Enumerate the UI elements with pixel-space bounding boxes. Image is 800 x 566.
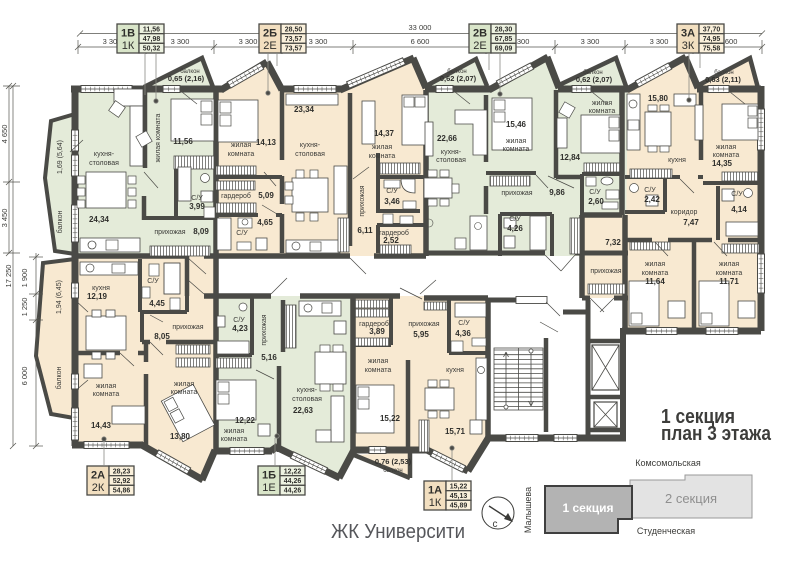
svg-text:2,60: 2,60 xyxy=(588,197,604,206)
svg-text:жилая комната: жилая комната xyxy=(155,114,162,163)
svg-text:8,05: 8,05 xyxy=(154,332,170,341)
svg-text:жилая: жилая xyxy=(174,381,195,388)
svg-text:3,99: 3,99 xyxy=(189,202,205,211)
svg-text:5,16: 5,16 xyxy=(261,353,277,362)
svg-text:С/У: С/У xyxy=(458,320,470,327)
svg-text:1К: 1К xyxy=(122,40,135,52)
svg-text:1 250: 1 250 xyxy=(20,298,29,317)
svg-text:коридор: коридор xyxy=(671,209,698,216)
svg-text:45,89: 45,89 xyxy=(450,503,468,510)
svg-text:С/У: С/У xyxy=(731,191,743,198)
svg-text:3 300: 3 300 xyxy=(650,37,669,46)
svg-text:1,94 (6,45): 1,94 (6,45) xyxy=(56,280,63,314)
svg-text:14,35: 14,35 xyxy=(712,159,733,168)
svg-text:С/У: С/У xyxy=(589,189,601,196)
svg-text:кухня-: кухня- xyxy=(94,151,115,158)
svg-text:3 300: 3 300 xyxy=(171,37,190,46)
svg-text:комната: комната xyxy=(228,151,255,158)
svg-text:С/У: С/У xyxy=(236,230,248,237)
svg-text:11,71: 11,71 xyxy=(719,277,739,286)
svg-text:1,69 (5,64): 1,69 (5,64) xyxy=(57,140,64,174)
svg-text:комната: комната xyxy=(716,270,743,277)
svg-text:3А: 3А xyxy=(681,28,695,40)
svg-text:комната: комната xyxy=(221,436,248,443)
svg-text:12,22: 12,22 xyxy=(235,416,256,425)
svg-text:1Б: 1Б xyxy=(262,470,276,482)
svg-text:74,95: 74,95 xyxy=(703,36,721,43)
svg-text:2Е: 2Е xyxy=(263,40,276,52)
svg-text:Студенческая: Студенческая xyxy=(637,526,695,536)
svg-text:С/У: С/У xyxy=(233,317,245,324)
svg-text:4,23: 4,23 xyxy=(232,324,248,333)
svg-text:11,64: 11,64 xyxy=(645,277,665,286)
svg-text:прихожая: прихожая xyxy=(408,321,439,328)
svg-text:14,37: 14,37 xyxy=(374,129,395,138)
svg-text:кухня-: кухня- xyxy=(297,387,318,394)
svg-text:67,85: 67,85 xyxy=(495,36,513,43)
svg-text:12,22: 12,22 xyxy=(284,469,302,476)
svg-text:6,11: 6,11 xyxy=(357,226,373,235)
svg-text:15,46: 15,46 xyxy=(506,120,527,129)
svg-text:0,62 (2,07): 0,62 (2,07) xyxy=(440,74,477,83)
svg-text:прихожая: прихожая xyxy=(261,314,268,345)
svg-text:11,56: 11,56 xyxy=(173,137,193,146)
svg-text:кухня: кухня xyxy=(668,157,686,164)
svg-text:балкон: балкон xyxy=(55,367,63,390)
svg-text:1 секция: 1 секция xyxy=(562,501,613,515)
svg-text:жилая: жилая xyxy=(506,138,527,145)
svg-text:15,22: 15,22 xyxy=(450,484,468,491)
svg-text:28,23: 28,23 xyxy=(113,469,131,476)
svg-text:2,42: 2,42 xyxy=(644,195,660,204)
svg-text:24,34: 24,34 xyxy=(89,215,110,224)
svg-text:2А: 2А xyxy=(91,470,105,482)
svg-text:5,95: 5,95 xyxy=(413,330,429,339)
svg-text:15,80: 15,80 xyxy=(648,94,669,103)
svg-text:4,26: 4,26 xyxy=(507,224,523,233)
svg-text:С/У: С/У xyxy=(386,188,398,195)
svg-text:комната: комната xyxy=(369,153,396,160)
svg-text:37,70: 37,70 xyxy=(703,27,721,34)
svg-text:73,57: 73,57 xyxy=(285,36,303,43)
svg-text:3 300: 3 300 xyxy=(309,37,328,46)
svg-text:54,86: 54,86 xyxy=(113,488,131,495)
svg-text:3 300: 3 300 xyxy=(581,37,600,46)
svg-text:12,84: 12,84 xyxy=(560,153,581,162)
svg-text:1К: 1К xyxy=(429,497,442,509)
svg-text:9,86: 9,86 xyxy=(549,188,565,197)
svg-text:С/У: С/У xyxy=(509,216,521,223)
svg-text:45,13: 45,13 xyxy=(450,493,468,500)
svg-text:6 000: 6 000 xyxy=(20,367,29,386)
svg-text:47,98: 47,98 xyxy=(143,36,161,43)
svg-text:52,92: 52,92 xyxy=(113,478,131,485)
svg-text:балкон: балкон xyxy=(383,468,402,474)
svg-text:4 650: 4 650 xyxy=(0,125,9,144)
svg-text:жилая: жилая xyxy=(716,144,737,151)
svg-text:4,45: 4,45 xyxy=(149,299,165,308)
svg-text:17 250: 17 250 xyxy=(4,265,13,288)
svg-text:комната: комната xyxy=(589,108,616,115)
svg-text:жилая: жилая xyxy=(592,100,613,107)
svg-text:столовая: столовая xyxy=(295,151,325,158)
svg-text:28,50: 28,50 xyxy=(285,27,303,34)
svg-text:15,22: 15,22 xyxy=(380,414,401,423)
svg-text:8,09: 8,09 xyxy=(193,227,209,236)
svg-text:4,65: 4,65 xyxy=(257,218,273,227)
svg-text:50,32: 50,32 xyxy=(143,46,161,53)
svg-text:4,14: 4,14 xyxy=(731,205,747,214)
svg-text:Комсомольская: Комсомольская xyxy=(635,458,701,468)
svg-text:0,62 (2,07): 0,62 (2,07) xyxy=(576,75,613,84)
svg-text:0,63 (2,11): 0,63 (2,11) xyxy=(705,75,741,84)
svg-text:15,71: 15,71 xyxy=(445,427,466,436)
svg-text:жилая: жилая xyxy=(645,261,666,268)
svg-text:жилая: жилая xyxy=(231,142,252,149)
svg-text:прихожая: прихожая xyxy=(172,324,203,331)
svg-text:3 300: 3 300 xyxy=(239,37,258,46)
svg-text:жилая: жилая xyxy=(719,261,740,268)
svg-text:жилая: жилая xyxy=(96,383,117,390)
svg-text:жилая: жилая xyxy=(224,428,245,435)
svg-text:С/У: С/У xyxy=(147,278,159,285)
svg-text:69,09: 69,09 xyxy=(495,46,513,53)
svg-text:12,19: 12,19 xyxy=(87,292,108,301)
svg-text:28,30: 28,30 xyxy=(495,27,513,34)
svg-text:прихожая: прихожая xyxy=(154,229,185,236)
svg-text:кухня: кухня xyxy=(446,367,464,374)
svg-text:столовая: столовая xyxy=(89,160,119,167)
svg-text:3,46: 3,46 xyxy=(384,197,400,206)
svg-text:кухня-: кухня- xyxy=(300,142,321,149)
svg-text:13,80: 13,80 xyxy=(170,432,191,441)
svg-text:комната: комната xyxy=(713,152,740,159)
svg-text:ЖК Университи: ЖК Университи xyxy=(331,520,465,543)
svg-text:3 450: 3 450 xyxy=(0,209,9,228)
svg-text:44,26: 44,26 xyxy=(284,478,302,485)
svg-text:2 секция: 2 секция xyxy=(665,491,717,506)
svg-text:С/У: С/У xyxy=(191,195,203,202)
svg-text:3,89: 3,89 xyxy=(369,327,385,336)
svg-text:0,76 (2,53): 0,76 (2,53) xyxy=(375,457,412,466)
svg-text:комната: комната xyxy=(503,146,530,153)
svg-text:комната: комната xyxy=(642,270,669,277)
svg-text:столовая: столовая xyxy=(292,396,322,403)
svg-text:3К: 3К xyxy=(682,40,695,52)
svg-text:жилая: жилая xyxy=(368,358,389,365)
svg-text:22,66: 22,66 xyxy=(437,134,458,143)
svg-text:Малышева: Малышева xyxy=(523,487,533,533)
svg-text:прихожая: прихожая xyxy=(501,190,532,197)
svg-text:14,13: 14,13 xyxy=(256,138,277,147)
svg-text:1Е: 1Е xyxy=(262,482,275,494)
svg-text:23,34: 23,34 xyxy=(294,105,315,114)
svg-text:2К: 2К xyxy=(92,482,105,494)
svg-text:2Е: 2Е xyxy=(473,40,486,52)
svg-text:балкон: балкон xyxy=(56,211,64,234)
svg-text:жилая: жилая xyxy=(372,144,393,151)
svg-text:11,56: 11,56 xyxy=(143,27,160,34)
svg-text:столовая: столовая xyxy=(436,157,466,164)
svg-text:комната: комната xyxy=(171,389,198,396)
svg-text:14,43: 14,43 xyxy=(91,421,112,430)
svg-text:2В: 2В xyxy=(473,28,487,40)
svg-text:7,47: 7,47 xyxy=(683,218,699,227)
svg-text:с: с xyxy=(493,519,498,530)
svg-text:73,57: 73,57 xyxy=(285,46,303,53)
svg-text:0,65 (2,16): 0,65 (2,16) xyxy=(168,74,205,83)
svg-text:1А: 1А xyxy=(428,485,442,497)
svg-text:1 900: 1 900 xyxy=(20,269,29,288)
svg-text:7,32: 7,32 xyxy=(605,238,621,247)
svg-text:кухня-: кухня- xyxy=(441,149,462,156)
svg-text:5,09: 5,09 xyxy=(258,191,274,200)
svg-text:план 3 этажа: план 3 этажа xyxy=(661,423,772,445)
svg-text:прихожая: прихожая xyxy=(590,268,621,275)
svg-text:2,52: 2,52 xyxy=(383,236,399,245)
svg-text:С/У: С/У xyxy=(644,187,656,194)
svg-text:1В: 1В xyxy=(121,28,135,40)
svg-text:22,63: 22,63 xyxy=(293,406,314,415)
svg-text:6 600: 6 600 xyxy=(411,37,430,46)
svg-text:прихожая: прихожая xyxy=(359,185,366,216)
svg-text:комната: комната xyxy=(93,391,120,398)
svg-text:44,26: 44,26 xyxy=(284,488,302,495)
svg-text:4,36: 4,36 xyxy=(455,329,471,338)
svg-text:33 000: 33 000 xyxy=(409,23,432,32)
svg-text:75,58: 75,58 xyxy=(703,46,721,53)
svg-text:кухня: кухня xyxy=(92,285,110,292)
svg-text:комната: комната xyxy=(365,367,392,374)
svg-text:гардероб: гардероб xyxy=(221,192,251,200)
svg-text:2Б: 2Б xyxy=(263,28,277,40)
